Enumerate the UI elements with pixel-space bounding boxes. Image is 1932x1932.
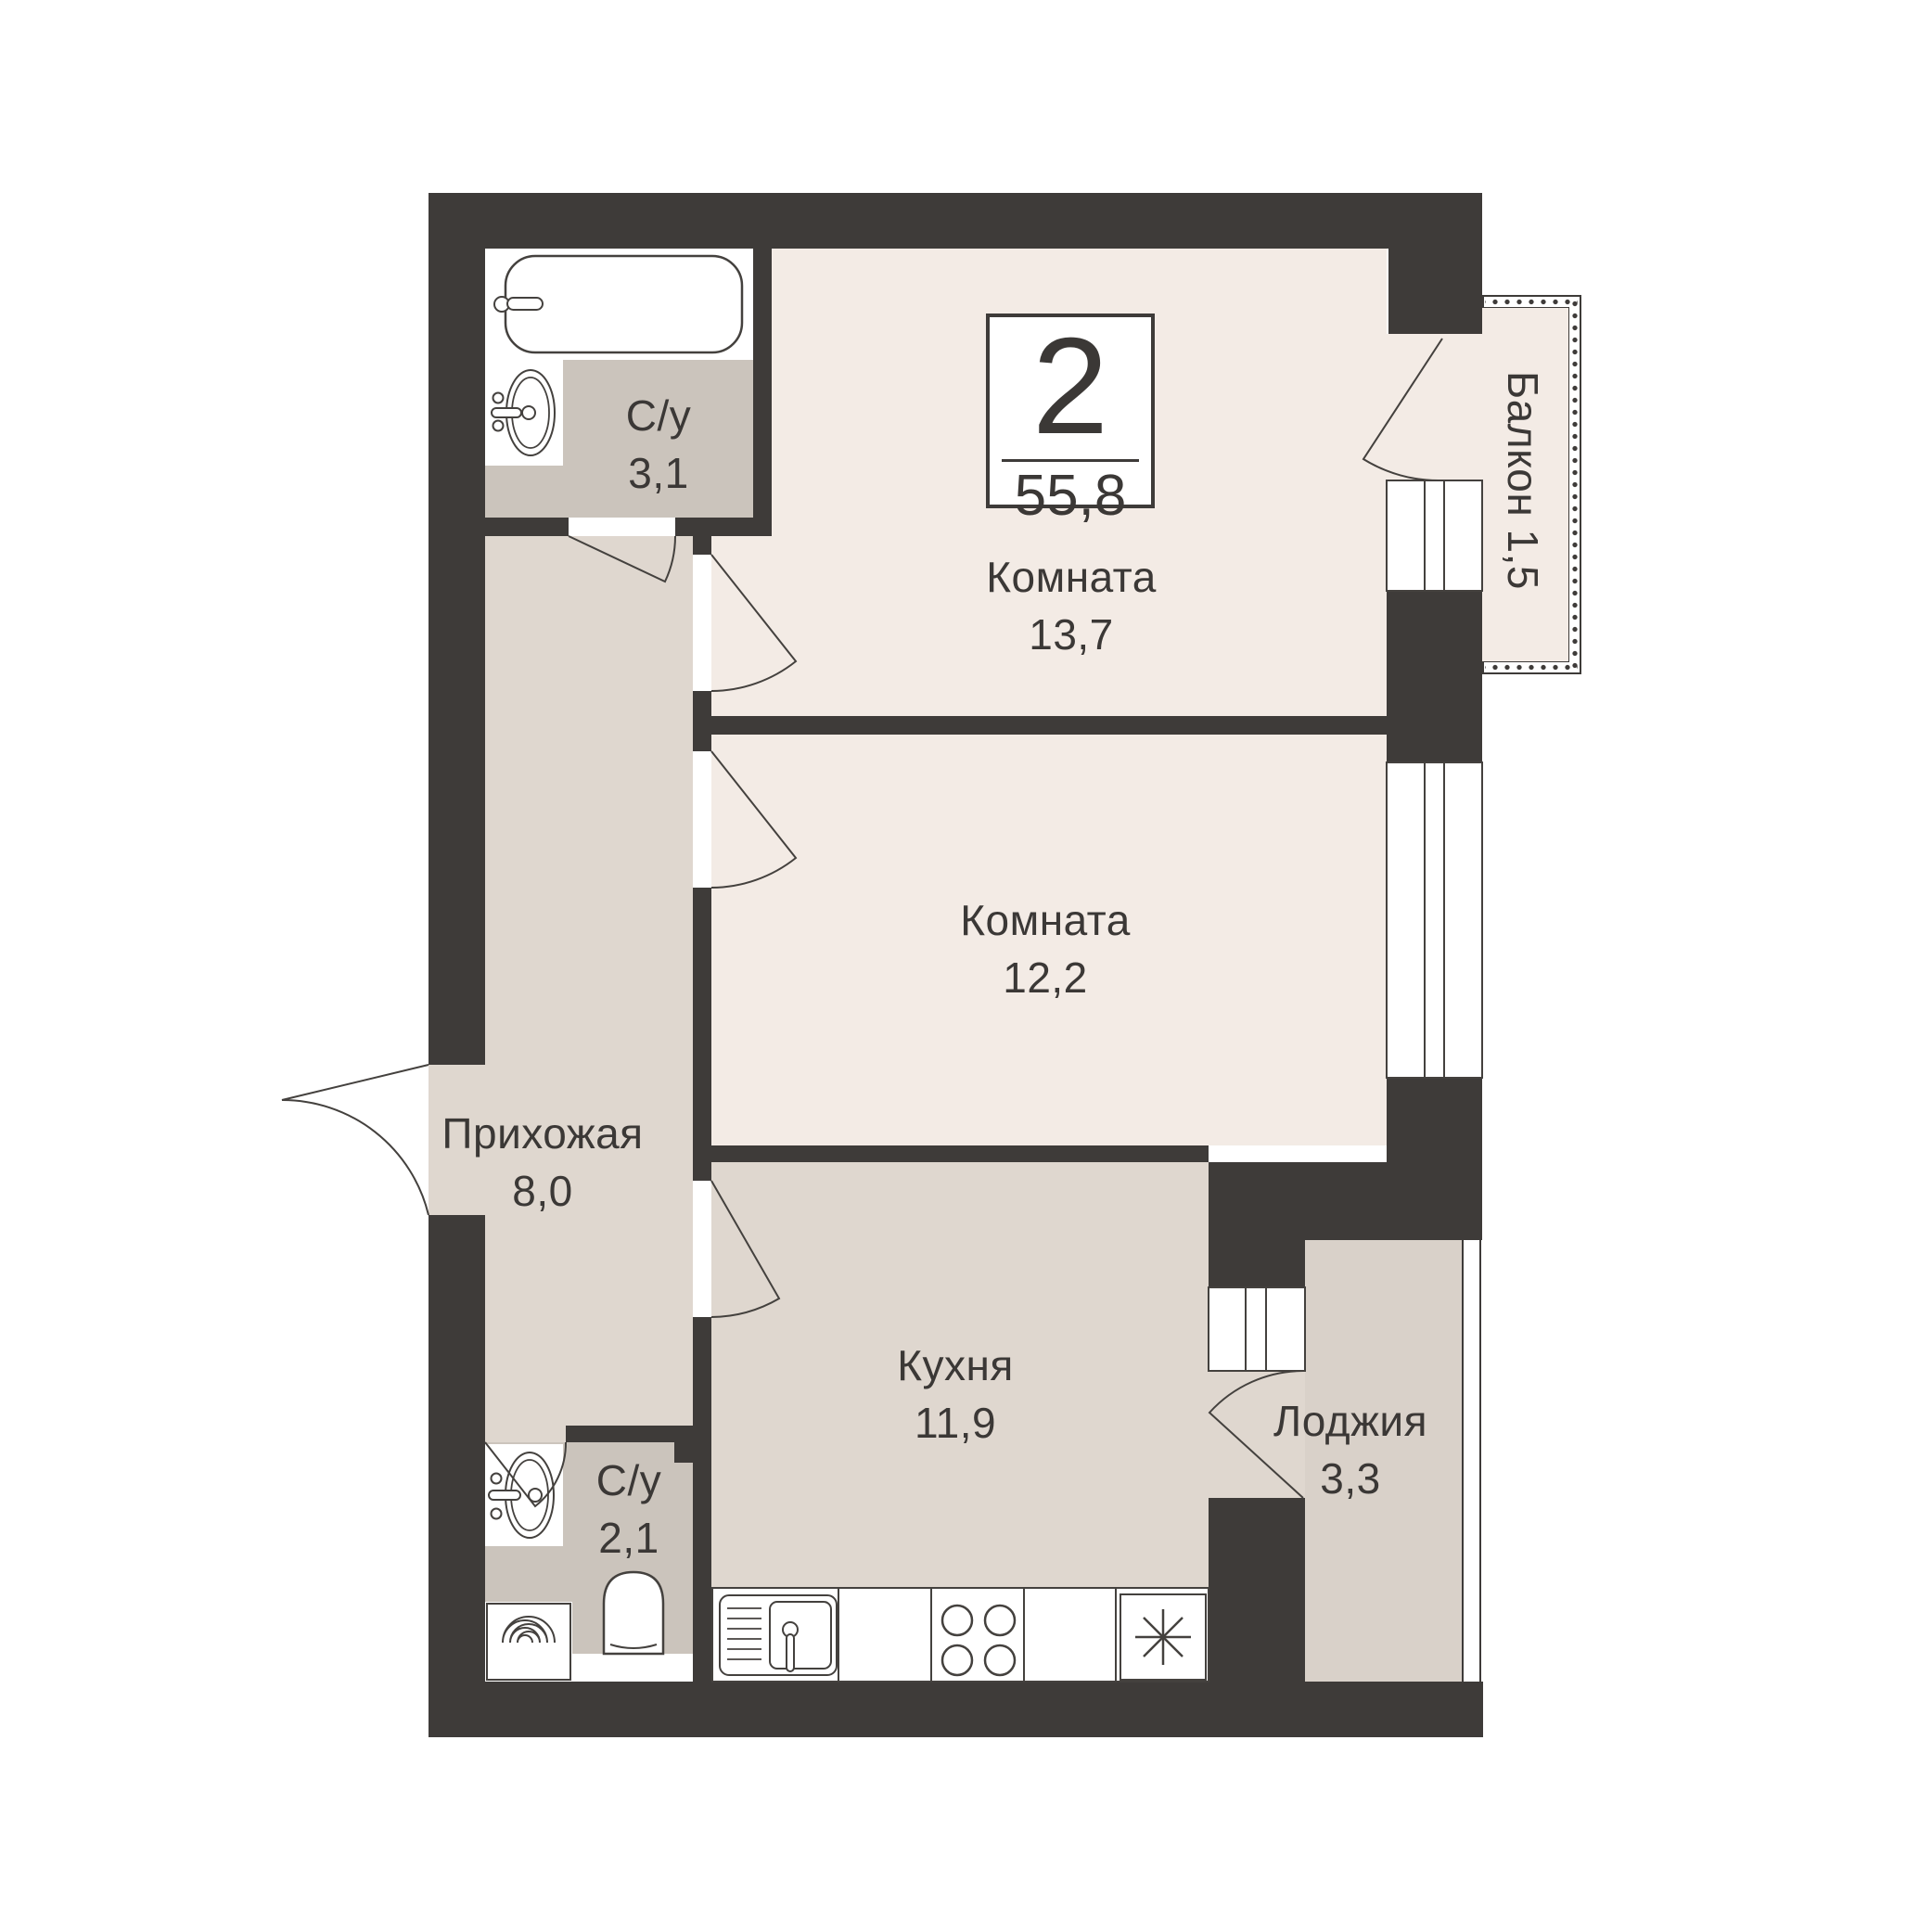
toilet-platform — [572, 1654, 693, 1682]
hallway-label: Прихожая 8,0 — [427, 1106, 659, 1220]
apartment-rooms-count: 2 — [990, 317, 1151, 457]
kitchen-counter-zone — [712, 1588, 1209, 1682]
bathroom-2-1-label: С/у 2,1 — [555, 1452, 703, 1567]
room-13-7-label: Комната 13,7 — [909, 549, 1234, 663]
sink-zone-bottom — [485, 1444, 563, 1546]
room-area: 12,2 — [883, 950, 1208, 1007]
room-area: 3,3 — [1235, 1451, 1466, 1508]
balcony-dots-top — [1485, 297, 1578, 307]
balcony-dots-bottom — [1485, 662, 1578, 672]
entrance-door-arc — [282, 1065, 429, 1215]
wall-hall-jamb-b — [693, 691, 711, 751]
room-12-2-label: Комната 12,2 — [883, 892, 1208, 1006]
balcony-dots-right — [1569, 297, 1580, 672]
wall-left-upper — [429, 193, 485, 1065]
room-area: 8,0 — [427, 1163, 659, 1221]
room-area: 1,5 — [1499, 530, 1547, 590]
room-13-7-floor-extension — [711, 536, 772, 716]
window-room-13-7-balcony — [1387, 480, 1482, 591]
room-name: Прихожая — [427, 1106, 659, 1163]
hallway-floor — [485, 536, 693, 1442]
room-name: Кухня — [816, 1337, 1094, 1395]
washing-machine-zone — [485, 1602, 572, 1682]
wall-hall-segment-c — [693, 888, 711, 1181]
wall-right-mid — [1387, 591, 1482, 762]
balcony-label: Балкон 1,5 — [1498, 371, 1548, 590]
room-name: Комната — [883, 892, 1208, 950]
wall-kitchen-strip-lower — [1209, 1498, 1305, 1737]
wall-kitchen-strip-upper — [1209, 1162, 1305, 1287]
wall-top-right-block — [1388, 193, 1482, 334]
apartment-total-area: 55,8 — [990, 467, 1151, 525]
wall-kitchen-top — [711, 1145, 1209, 1162]
room-name: С/у — [555, 1452, 703, 1510]
floor-plan: 2 55,8 Комната 13,7 Комната 12,2 Прихожа… — [0, 0, 1932, 1932]
wall-bathroom1-bottom-left — [484, 518, 569, 536]
room-name: С/у — [584, 388, 733, 445]
room-name: Балкон — [1499, 371, 1547, 517]
wall-above-loggia — [1305, 1162, 1482, 1240]
window-room-12-2 — [1387, 762, 1482, 1078]
room-name: Лоджия — [1235, 1393, 1466, 1451]
balcony-door-opening — [1387, 334, 1482, 480]
wall-rooms-divider — [711, 716, 1387, 735]
wall-left-lower — [429, 1215, 485, 1737]
window-kitchen-loggia — [1209, 1287, 1305, 1371]
kitchen-label: Кухня 11,9 — [816, 1337, 1094, 1452]
bathroom-3-1-label: С/у 3,1 — [584, 388, 733, 502]
wall-top — [429, 193, 1482, 249]
wall-bathroom2-top — [566, 1426, 674, 1442]
wall-bathroom1-right — [753, 249, 772, 536]
room-area: 11,9 — [816, 1395, 1094, 1452]
room-area: 13,7 — [909, 607, 1234, 664]
wall-hall-jamb-a — [693, 536, 711, 555]
room-area: 2,1 — [555, 1510, 703, 1567]
room-area: 3,1 — [584, 445, 733, 503]
sink-zone-top — [485, 360, 563, 466]
room-name: Комната — [909, 549, 1234, 607]
wall-bottom — [429, 1682, 1483, 1737]
bathtub-zone — [485, 249, 753, 360]
loggia-label: Лоджия 3,3 — [1235, 1393, 1466, 1507]
apartment-badge: 2 55,8 — [986, 313, 1155, 508]
